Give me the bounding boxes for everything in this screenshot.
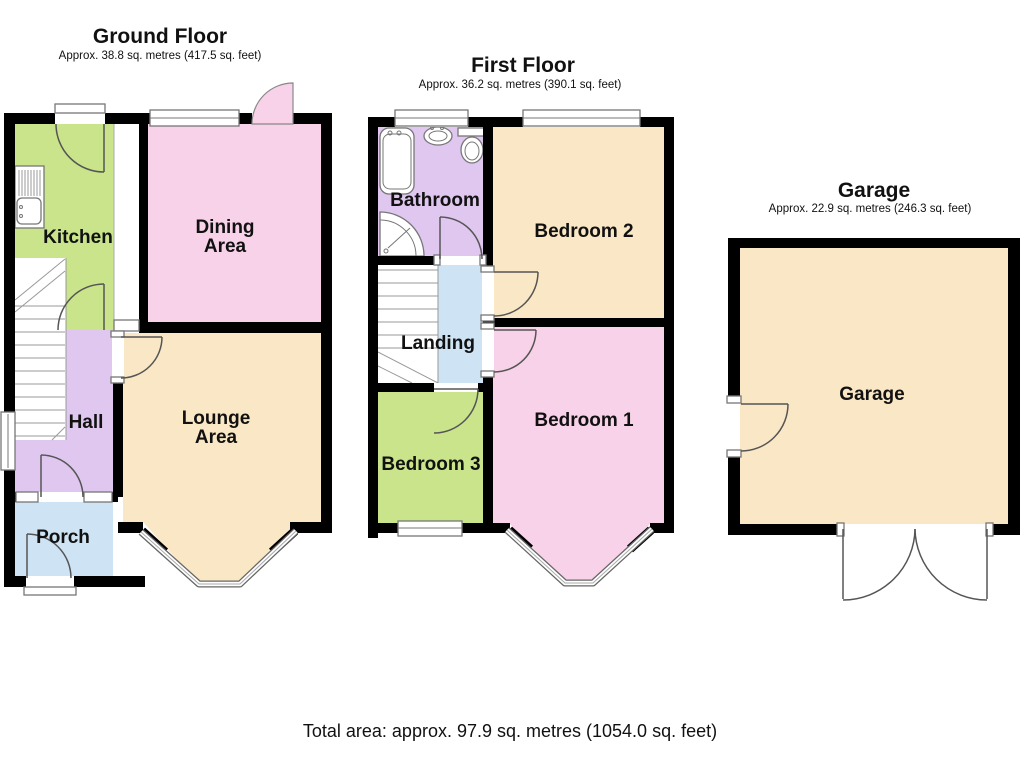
ground-floor-subtitle: Approx. 38.8 sq. metres (417.5 sq. feet) <box>59 50 262 62</box>
door-jamb <box>111 331 124 337</box>
door-jamb <box>481 266 494 272</box>
lounge-label-line2: Area <box>195 427 238 448</box>
kitchen-counter <box>15 166 44 228</box>
kitchen-door-step <box>55 104 105 113</box>
garage-plan: Garage Approx. 22.9 sq. metres (246.3 sq… <box>727 179 1020 600</box>
garage-label: Garage <box>839 384 904 405</box>
bedroom2-window <box>523 110 640 126</box>
floorplan-page: Ground Floor Approx. 38.8 sq. metres (41… <box>0 0 1024 768</box>
dining-label-line2: Area <box>204 236 247 257</box>
first-floor-subtitle: Approx. 36.2 sq. metres (390.1 sq. feet) <box>419 79 622 91</box>
first-floor-plan: First Floor Approx. 36.2 sq. metres (390… <box>368 54 674 583</box>
garage-double-doors <box>843 529 987 600</box>
bedroom3-window <box>398 521 462 536</box>
door-jamb <box>481 315 494 321</box>
lounge-label-line1: Lounge <box>182 408 251 429</box>
door-jamb <box>480 255 486 265</box>
dining-back-door <box>252 83 293 124</box>
front-door-step <box>24 587 76 595</box>
door-jamb <box>481 323 494 329</box>
kitchen-label: Kitchen <box>43 227 113 248</box>
door-jamb <box>727 450 741 457</box>
first-floor-title: First Floor <box>471 54 575 77</box>
store-sill <box>114 320 139 331</box>
bathroom-window <box>395 110 468 126</box>
ground-staircase <box>15 258 66 440</box>
door-jamb <box>481 371 494 377</box>
ground-floor-plan: Ground Floor Approx. 38.8 sq. metres (41… <box>1 25 332 595</box>
bedroom1-label: Bedroom 1 <box>534 410 634 431</box>
first-staircase <box>378 264 438 383</box>
basin <box>424 127 452 146</box>
landing-label: Landing <box>401 333 475 354</box>
porch-hall-window-left <box>16 492 38 502</box>
floorplan-drawing: Ground Floor Approx. 38.8 sq. metres (41… <box>0 0 1024 768</box>
garage-title: Garage <box>838 179 910 202</box>
dining-window <box>150 110 239 126</box>
bedroom3-label: Bedroom 3 <box>381 454 480 475</box>
bedroom2-label: Bedroom 2 <box>534 221 633 242</box>
bathroom-label: Bathroom <box>390 190 480 211</box>
bathtub <box>380 128 414 194</box>
porch-label: Porch <box>36 527 90 548</box>
porch-hall-window-right <box>84 492 112 502</box>
hall-window <box>1 412 15 470</box>
door-jamb <box>727 396 741 403</box>
door-jamb <box>434 255 440 265</box>
store-strip <box>114 124 139 330</box>
kitchen-sink <box>17 198 41 224</box>
dining-label-line1: Dining <box>195 217 254 238</box>
hall-label: Hall <box>69 412 104 433</box>
garage-subtitle: Approx. 22.9 sq. metres (246.3 sq. feet) <box>769 203 972 215</box>
ground-floor-title: Ground Floor <box>93 25 227 48</box>
total-area-text: Total area: approx. 97.9 sq. metres (105… <box>303 721 717 741</box>
